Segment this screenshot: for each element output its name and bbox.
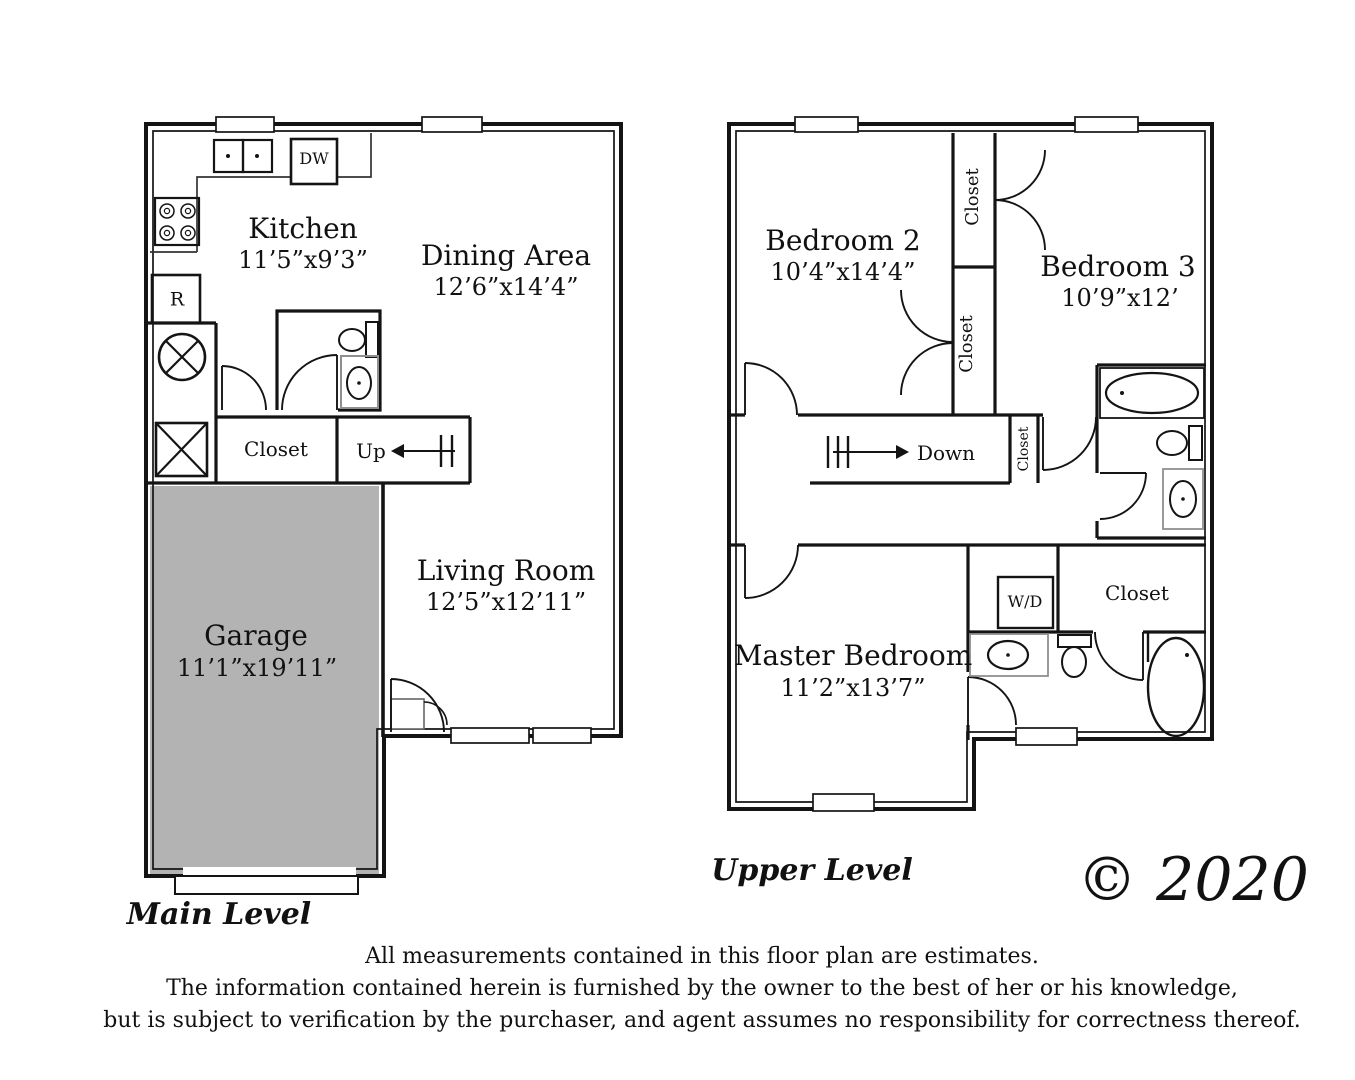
bedroom2-dims-label: 10’4”x14’4” [771, 260, 916, 284]
dining-dims-label: 12’6”x14’4” [434, 275, 579, 299]
stair-closet-label: Closet [1017, 427, 1031, 472]
window [813, 794, 874, 811]
master-closet-label: Closet [1105, 583, 1169, 603]
entry-step [391, 699, 424, 729]
toilet-icon [1058, 635, 1091, 677]
disclaimer-line-1: All measurements contained in this floor… [365, 946, 1039, 968]
dishwasher-label: DW [299, 151, 328, 167]
bedroom2-name-label: Bedroom 2 [765, 227, 920, 255]
copyright-text: © 2020 [1077, 850, 1309, 910]
main-closet-label: Closet [244, 439, 308, 459]
window [533, 728, 591, 743]
half-bath-walls [277, 311, 380, 410]
down-stairs-arrow [828, 436, 909, 468]
sink-icon [970, 634, 1048, 676]
down-label: Down [917, 443, 975, 463]
bathtub-icon [1148, 638, 1204, 736]
disclaimer-line-3: but is subject to verification by the pu… [103, 1010, 1300, 1032]
garage-name-label: Garage [204, 622, 308, 650]
dining-name-label: Dining Area [421, 242, 591, 270]
bedroom3-name-label: Bedroom 3 [1040, 253, 1195, 281]
utility-box-icon [156, 423, 207, 476]
garage-dims-label: 11’1”x19’11” [177, 656, 337, 680]
upper-level-title: Upper Level [711, 856, 913, 886]
window [451, 728, 529, 743]
kitchen-dims-label: 11’5”x9’3” [238, 248, 368, 272]
stove-icon [155, 198, 199, 245]
master-dims-label: 11’2”x13’7” [781, 676, 926, 700]
window [1075, 117, 1138, 132]
sink-icon [341, 356, 378, 408]
washer-dryer-label: W/D [1008, 594, 1043, 610]
sink-icon [1163, 469, 1203, 529]
toilet-icon [1157, 426, 1202, 460]
kitchen-sink-icon [214, 140, 272, 172]
window [795, 117, 858, 132]
bedroom3-closet-label: Closet [964, 168, 982, 226]
light-fixture-icon [159, 334, 205, 380]
bedroom2-closet-label: Closet [958, 315, 976, 373]
window [422, 117, 482, 132]
up-label: Up [356, 441, 386, 461]
refrigerator-label: R [170, 291, 184, 310]
living-dims-label: 12’5”x12’11” [426, 590, 586, 614]
kitchen-name-label: Kitchen [248, 215, 357, 243]
garage-door [175, 867, 358, 894]
window [1016, 728, 1077, 745]
up-stairs-arrow [391, 435, 455, 467]
disclaimer-line-2: The information contained herein is furn… [166, 978, 1238, 1000]
living-name-label: Living Room [417, 557, 596, 585]
bedroom3-dims-label: 10’9”x12’ [1061, 286, 1178, 310]
window [216, 117, 274, 132]
door-swing [222, 355, 337, 410]
main-level-plan [145, 117, 621, 894]
bathtub-icon [1100, 368, 1204, 418]
floor-plan-page: Kitchen 11’5”x9’3” Dining Area 12’6”x14’… [0, 0, 1355, 1080]
main-level-title: Main Level [127, 900, 311, 930]
master-name-label: Master Bedroom [734, 642, 973, 670]
toilet-icon [339, 322, 378, 357]
